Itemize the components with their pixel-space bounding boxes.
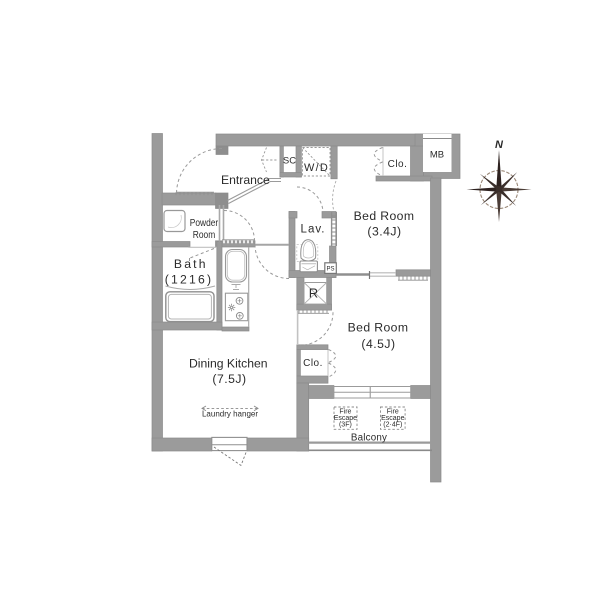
svg-text:Laundry hanger: Laundry hanger [202, 409, 258, 418]
svg-text:Entrance: Entrance [221, 173, 270, 187]
svg-text:N: N [495, 139, 504, 151]
svg-text:Room: Room [193, 229, 215, 241]
svg-text:W/D: W/D [304, 162, 329, 174]
svg-text:MB: MB [430, 150, 444, 161]
svg-text:(3F): (3F) [339, 422, 352, 429]
svg-text:Dining Kitchen: Dining Kitchen [189, 357, 268, 371]
svg-text:(7.5J): (7.5J) [212, 372, 246, 386]
svg-text:Bath: Bath [174, 257, 208, 271]
svg-text:(4.5J): (4.5J) [361, 337, 395, 351]
svg-text:SC: SC [283, 156, 296, 167]
svg-text:(2·4F): (2·4F) [383, 422, 402, 429]
svg-text:Powder: Powder [190, 217, 218, 229]
svg-text:(1216): (1216) [165, 273, 213, 287]
svg-text:Balcony: Balcony [351, 433, 387, 444]
svg-text:Bed Room: Bed Room [354, 209, 415, 223]
svg-text:Bed Room: Bed Room [348, 321, 409, 335]
svg-text:Clo.: Clo. [388, 159, 408, 170]
svg-text:PS: PS [326, 266, 334, 272]
svg-text:(3.4J): (3.4J) [367, 225, 401, 239]
svg-text:Clo.: Clo. [303, 358, 323, 369]
svg-text:Lav.: Lav. [301, 223, 326, 235]
svg-text:R: R [309, 286, 318, 301]
